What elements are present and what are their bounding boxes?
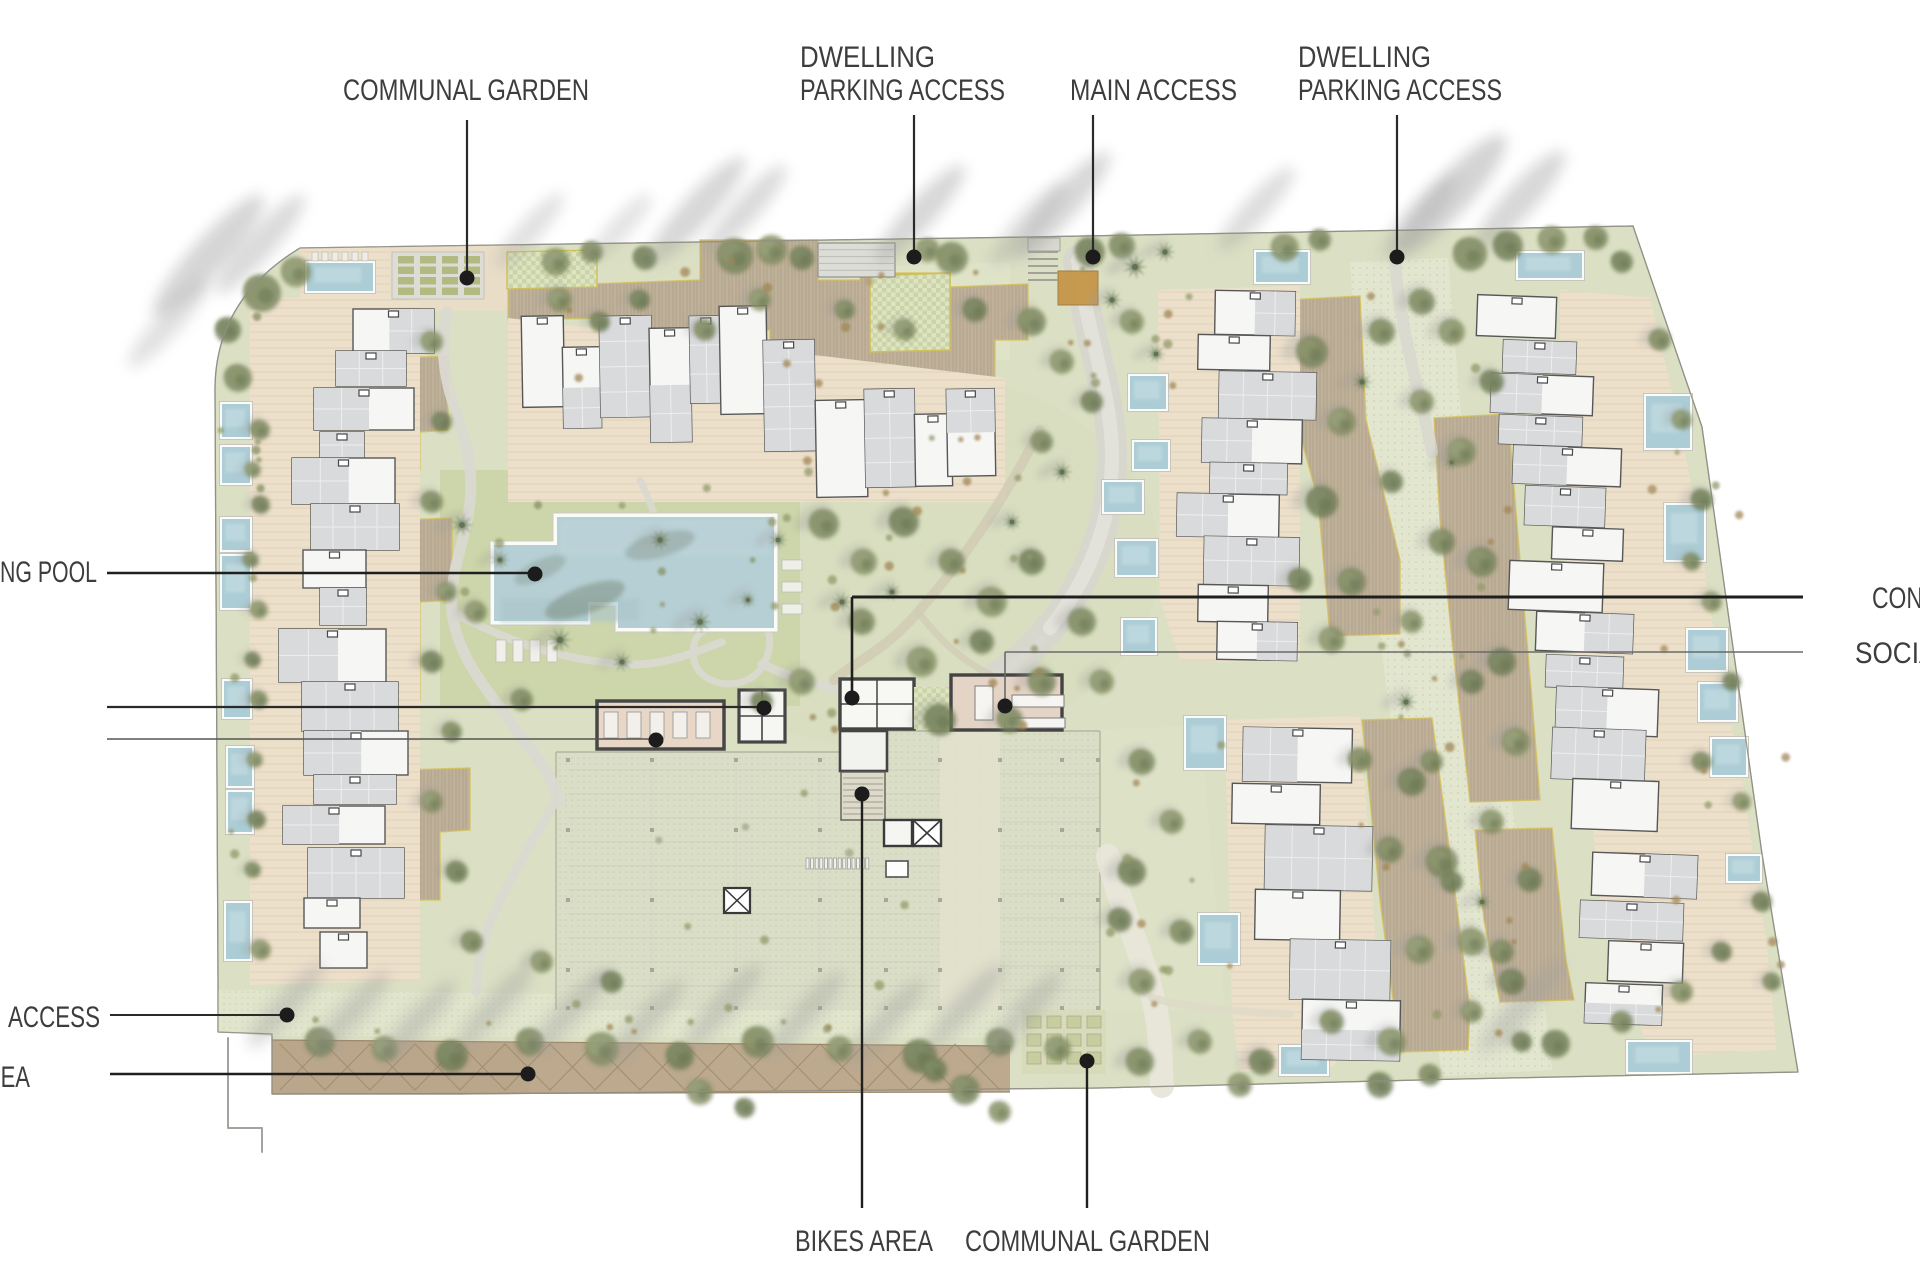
- svg-text:DWELLING: DWELLING: [800, 41, 935, 74]
- svg-text:MAIN ACCESS: MAIN ACCESS: [1070, 74, 1237, 107]
- svg-text:NG POOL: NG POOL: [0, 556, 97, 589]
- svg-text:COMMUNAL GARDEN: COMMUNAL GARDEN: [965, 1225, 1210, 1258]
- svg-text:SOCIAL: SOCIAL: [1855, 637, 1920, 670]
- svg-text:COMMUNAL GARDEN: COMMUNAL GARDEN: [343, 74, 589, 107]
- svg-text:CONTROL: CONTROL: [1872, 582, 1920, 615]
- svg-text:ACCESS: ACCESS: [8, 1001, 100, 1034]
- svg-text:PARKING ACCESS: PARKING ACCESS: [1298, 74, 1502, 107]
- svg-text:BIKES AREA: BIKES AREA: [795, 1225, 933, 1258]
- svg-text:AREA: AREA: [0, 1061, 30, 1094]
- svg-text:PARKING ACCESS: PARKING ACCESS: [800, 74, 1005, 107]
- svg-text:DWELLING: DWELLING: [1298, 41, 1431, 74]
